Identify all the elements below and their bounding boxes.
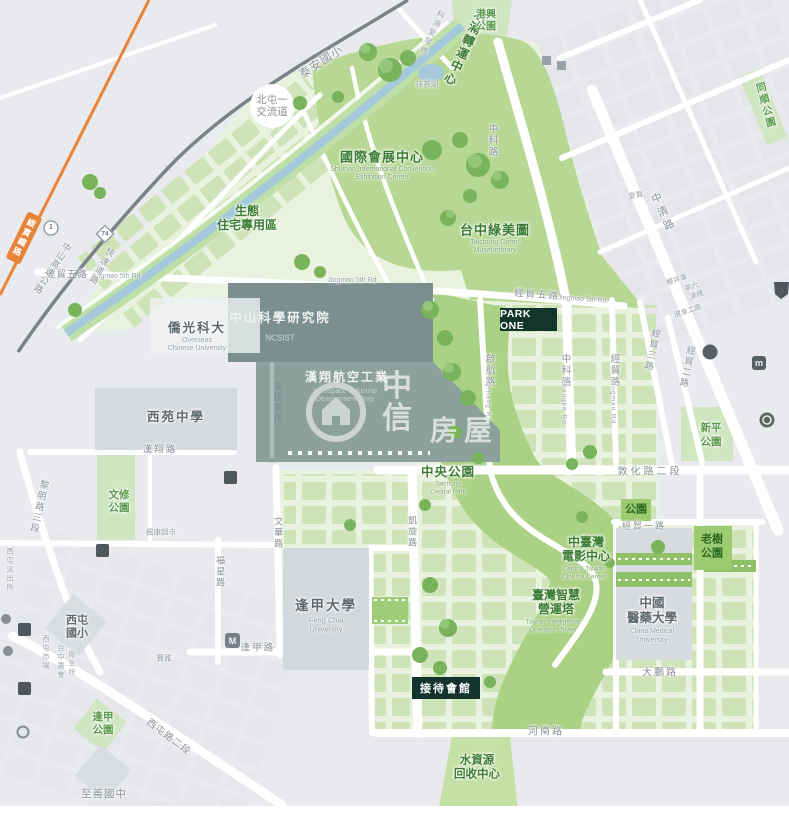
xinping-park-label-1: 新平: [701, 422, 722, 434]
tower-label-1: 臺灣智慧: [532, 589, 580, 603]
fuxing-rd-label: 福星路: [215, 556, 225, 589]
m-square-glyph: m: [755, 358, 763, 368]
cmu-label-1: 中國: [639, 596, 664, 610]
watermark-char-2: 信: [382, 402, 412, 437]
tower-label-2: 營運塔: [538, 603, 574, 617]
eco-zone-label-1: 生態: [235, 205, 259, 219]
poi-mini-icon: [542, 56, 551, 65]
page-edge: [0, 806, 789, 813]
poi-square-icon: [96, 544, 109, 557]
gangxing-park-label-1: 港興: [476, 9, 496, 21]
cmu-en-2: University: [637, 637, 668, 645]
hanxiang-e-rd-label: 漢翔東路: [272, 382, 282, 424]
watermark-char-1: 中: [382, 370, 412, 405]
area-map: 泰安國小 北屯一 交流道 水湳轉運中心 科湳愛琴橋 港興 公園 同順公園 抹茶湖…: [0, 0, 789, 813]
eco-zone-label-2: 住宅專用區: [217, 219, 277, 233]
fengjia-park-label-2: 公園: [93, 724, 114, 736]
wrc-label-2: 回收中心: [454, 768, 500, 781]
fengkang-market-label: 楓康超市: [146, 529, 176, 538]
wrc-label-1: 水資源: [460, 754, 495, 767]
reception-hall-badge: 接待會館: [412, 677, 480, 699]
aidc-label: 漢翔航空工業: [305, 371, 389, 385]
kaixuan-rd-label: 凱旋路: [407, 516, 417, 549]
poi-square-icon: [224, 471, 237, 484]
jingmao1-rd-label: 經貿一路: [622, 521, 666, 531]
central-park-en-2: Central Park: [430, 488, 466, 495]
laoshu-park-label-1: 老樹: [701, 534, 723, 547]
poi-square-icon: [18, 623, 31, 636]
museumbrary-en-2: Museumbrary: [474, 247, 517, 255]
cinema-en-2: Cinema Center: [562, 573, 606, 580]
museumbrary-label: 台中綠美圖: [460, 224, 530, 239]
xitun-es-label-1: 西屯: [66, 615, 88, 628]
freeway-shield-number: 1: [49, 224, 53, 232]
hanxiang-rd-label: 漢翔路: [143, 446, 178, 457]
ocu-en-2: Chinese University: [168, 345, 226, 353]
xitun-es-label-2: 國小: [66, 628, 88, 641]
police-station-label: 西屯派出所: [5, 548, 13, 593]
interchange-label-2: 交流道: [256, 106, 288, 118]
mcdonalds-m: M: [229, 635, 237, 645]
poi-square-icon: [18, 682, 31, 695]
expressway-shield-number: 74: [101, 230, 108, 237]
park-badge-label: 公園: [625, 504, 647, 517]
gangxing-park-label-2: 公園: [476, 21, 496, 33]
jingmao-rd-en: Jingmao Rd: [609, 380, 616, 425]
starbucks-icon: [760, 413, 775, 428]
ncsist-label: 中山科學研究院: [229, 311, 331, 325]
cmu-en-1: China Medical: [630, 628, 674, 636]
watermark-chars-3: 房屋: [430, 415, 498, 447]
wenxiu-park-label-2: 公園: [109, 502, 130, 514]
cinema-label-1: 中臺灣: [568, 536, 604, 550]
fcu-label: 逢甲大學: [295, 598, 357, 614]
farmers-assoc-label: 台中農會: [56, 644, 64, 680]
cinema-label-2: 電影中心: [562, 550, 610, 564]
xiyuan-school-label: 西苑中學: [147, 410, 205, 424]
dunhua-rd-label: 敦化路二段: [618, 466, 683, 478]
cmu-label-2: 醫藥大學: [627, 611, 677, 625]
convention-center-en-1: Shuinan International Convention: [330, 166, 434, 174]
convention-center-en-2: Exhibition Center: [355, 174, 408, 182]
laoshu-park-label-2: 公園: [701, 548, 723, 561]
jingmao5-mid-en: Jingmao 5th Rd: [327, 277, 376, 285]
xinping-park-label-2: 公園: [701, 436, 722, 448]
matcha-lake-label: 抹茶湖: [416, 81, 439, 90]
poya-label: 寶雅: [157, 655, 172, 664]
fcu-en-2: University: [310, 626, 343, 635]
convention-center-label: 國際會展中心: [340, 151, 424, 166]
poi-mini-icon: [557, 61, 566, 70]
cinema-en-1: Central Taiwan: [563, 565, 606, 572]
ncsist-en: NCSIST: [265, 333, 294, 342]
fengjia-park-label-1: 逢甲: [93, 711, 114, 723]
aidc-en-1: Aerospace Industrial: [313, 388, 377, 396]
fengjia-rd-label: 逢甲路: [241, 644, 276, 655]
ocu-en-1: Overseas: [182, 337, 212, 345]
zhongke-rd-en: Zhongke Rd: [560, 379, 567, 424]
ocu-label: 僑光科大: [168, 321, 226, 335]
zhongke-rd-n-label: 中科路: [486, 124, 497, 159]
restaurant-m-icon: [703, 345, 718, 360]
aidc-en-2: Development Corp: [316, 396, 374, 404]
wenhua-rd-label: 文華路: [273, 517, 283, 550]
zhishan-school-label: 至善國中: [81, 788, 127, 800]
health-station-label: 衛生所: [67, 651, 75, 678]
xitun-market-label: 西屯市場: [41, 635, 49, 671]
henan-rd-label: 河南路: [528, 726, 564, 738]
poi-circle-icon: [1, 614, 11, 624]
poi-circle-icon: [3, 646, 13, 656]
dapeng-rd-label: 大鵬路: [642, 667, 678, 679]
park-one-badge: PARK ONE: [500, 308, 557, 331]
tower-en-1: Taiwan Intelligence: [526, 618, 581, 625]
central-park-label: 中央公園: [421, 465, 475, 479]
wenxiu-park-label-1: 文修: [109, 489, 130, 501]
central-park-en-1: Taichung: [435, 480, 461, 487]
tower-en-2: Operation Tower: [529, 626, 577, 633]
interchange-label-1: 北屯一: [256, 94, 288, 106]
museumbrary-en-1: Taichung Green: [470, 239, 519, 247]
